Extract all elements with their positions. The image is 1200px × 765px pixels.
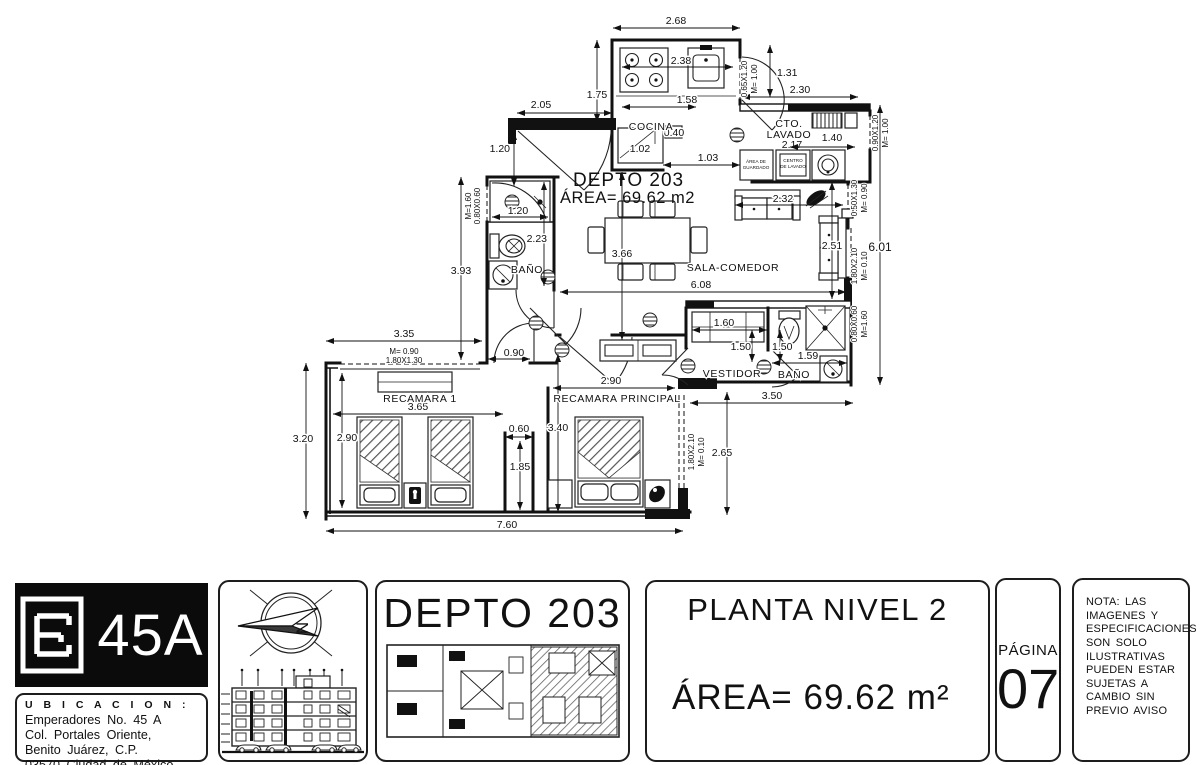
laundry-label-1: CENTRO: [783, 158, 803, 163]
dim-terrace-d: 2.65: [712, 447, 733, 459]
room-rec1: RECAMARA 1: [383, 393, 457, 405]
level-title: PLANTA NIVEL 2: [647, 592, 988, 628]
dim-r1-door: 0.90: [504, 347, 525, 359]
win-lavado-size: 0.90X1.20: [871, 114, 880, 151]
dim-sofa-a: 2.32: [773, 193, 794, 205]
win-balcon-size: 1.80X2.10: [850, 247, 859, 284]
room-vestidor: VESTIDOR: [703, 368, 761, 380]
unit-panel: DEPTO 203: [375, 580, 630, 762]
note-line: ILUSTRATIVAS: [1086, 651, 1188, 665]
dim-terrace-w: 3.50: [762, 390, 783, 402]
dim-left-v: 3.93: [451, 265, 472, 277]
storage-label-2: GUARDADO: [743, 165, 770, 170]
ubicacion-line: Benito Juárez, C.P.: [25, 743, 198, 758]
ubicacion-line: Emperadores No. 45 A: [25, 713, 198, 728]
logo-text: 45A: [93, 602, 208, 669]
win-sala-size: 0.50X1.30: [850, 179, 859, 216]
laundry-label-2: DE LAVADO: [780, 164, 806, 169]
note-line: SUJETAS A: [1086, 678, 1188, 692]
note-line: IMAGENES Y: [1086, 610, 1188, 624]
win-bano2-size: 0.80X0.60: [850, 305, 859, 342]
building-elevation-icon: [221, 669, 364, 753]
dim-r1-h: 2.90: [337, 432, 358, 444]
win-bano2-m: M=1.60: [860, 310, 869, 337]
compass-n-label: N: [293, 622, 312, 634]
win-bano1-m: M=1.60: [464, 192, 473, 219]
dim-living-w: 6.08: [691, 279, 712, 291]
dim-niche-w: 0.60: [509, 423, 530, 435]
win-cocina-m: M= 1.00: [750, 64, 759, 94]
plant-icon: [804, 187, 828, 209]
note-line: ESPECIFICACIONES: [1086, 623, 1188, 637]
shower2-icon: [806, 306, 845, 350]
storage-label-1: ÁREA DE: [746, 158, 766, 164]
stove-icon: [620, 48, 668, 92]
note-line: CAMBIO SIN: [1086, 691, 1188, 705]
room-cto-2: LAVADO: [767, 129, 812, 141]
dim-lavado-top: 2.30: [790, 84, 811, 96]
level-area: ÁREA= 69.62 m²: [672, 678, 988, 718]
dim-sofa-b: 2.51: [822, 240, 843, 252]
room-bano2: BAÑO: [778, 368, 810, 381]
nightstand-icon: [548, 480, 572, 508]
dim-vest-closet: 1.60: [714, 317, 735, 329]
dim-pass: 1.03: [698, 152, 719, 164]
bed2-icon: [428, 417, 473, 508]
dim-lavado-gap: 1.31: [777, 67, 798, 79]
plan-area: ÁREA= 69.62 m2: [560, 188, 695, 207]
dim-dining-v: 3.66: [612, 248, 633, 260]
room-cocina: COCINA: [629, 121, 673, 133]
note-panel: NOTA: LAS IMAGENES Y ESPECIFICACIONES SO…: [1072, 578, 1190, 762]
dim-right-v: 6.01: [868, 240, 892, 254]
note-line: NOTA: LAS: [1086, 596, 1188, 610]
laundry-center-box: CENTRO DE LAVADO: [776, 150, 810, 180]
logo-e-icon: [15, 592, 93, 678]
note-line: PUEDEN ESTAR: [1086, 664, 1188, 678]
dim-bath1-l: 2.23: [527, 233, 548, 245]
page-number: 07: [997, 661, 1059, 717]
ubicacion-line: Col. Portales Oriente,: [25, 728, 198, 743]
washer-icon: [812, 150, 845, 180]
key-plan-icon: [383, 637, 623, 745]
note-line: PREVIO AVISO: [1086, 705, 1188, 719]
dim-kitchen-w: 1.58: [677, 94, 698, 106]
win-recp-size: 1.80X2.10: [687, 433, 696, 470]
laundry-closet-icon: [812, 113, 842, 128]
toilet2-icon: [779, 311, 800, 344]
dim-rp-h: 3.40: [548, 422, 569, 434]
drawing-sheet: ÁREA DE GUARDADO CENTRO DE LAVADO: [0, 0, 1200, 765]
compass-panel: N: [218, 580, 368, 762]
plan-title: DEPTO 203: [573, 170, 684, 191]
bed1-icon: [357, 417, 402, 508]
master-bed-icon: [575, 417, 643, 507]
nightstand-lamp-icon: [404, 483, 426, 508]
dim-top: 2.68: [666, 15, 687, 27]
note-line: SON SOLO: [1086, 637, 1188, 651]
dim-shower1: 1.20: [508, 205, 529, 217]
dim-entry: 2.05: [531, 99, 552, 111]
win-closet-size: 1.80X1.30: [386, 356, 423, 365]
storage-box: ÁREA DE GUARDADO: [740, 150, 773, 180]
level-panel: PLANTA NIVEL 2 ÁREA= 69.62 m²: [645, 580, 990, 762]
floor-plan: ÁREA DE GUARDADO CENTRO DE LAVADO: [0, 0, 1200, 570]
ubicacion-box: U B I C A C I O N : Emperadores No. 45 A…: [15, 693, 208, 762]
dim-entry-h: 1.20: [490, 143, 511, 155]
dim-niche-h: 1.85: [510, 461, 531, 473]
compass-and-elevation: N: [220, 582, 366, 760]
kitchen-sink-icon: [688, 45, 724, 88]
dim-bath2-w: 1.59: [798, 350, 819, 362]
win-balcon-m: M= 0.10: [860, 251, 869, 281]
nightstand-lamp2-icon: [645, 480, 670, 508]
dim-bottom: 7.60: [497, 519, 518, 531]
win-lavado-m: M= 1.00: [881, 118, 890, 148]
win-closet-m: M= 0.90: [389, 347, 419, 356]
dim-closet-lav: 1.40: [822, 132, 843, 144]
dim-k-left: 1.75: [587, 89, 608, 101]
closet-shelf: [378, 372, 452, 392]
ubicacion-heading: U B I C A C I O N :: [25, 699, 198, 711]
toilet1-icon: [490, 234, 525, 258]
room-recp: RECAMARA PRINCIPAL: [553, 393, 680, 405]
dim-vest-d: 1.50: [731, 341, 752, 353]
room-bano1: BAÑO: [511, 263, 543, 276]
dim-rp-w: 2.90: [601, 375, 622, 387]
master-closet: [600, 340, 676, 361]
unit-title: DEPTO 203: [377, 590, 628, 637]
dim-bath2-d: 1.50: [772, 341, 793, 353]
page-panel: PÁGINA 07: [995, 578, 1061, 762]
win-recp-m: M= 0.10: [697, 437, 706, 467]
dim-r1-top: 3.35: [394, 328, 415, 340]
dim-left-outer: 3.20: [293, 433, 314, 445]
ubicacion-line: 03570 Ciudad de México: [25, 758, 198, 765]
logo: 45A: [15, 583, 208, 687]
north-compass-icon: N: [238, 590, 332, 656]
win-bano1-size: 0.80X0.60: [473, 187, 482, 224]
win-sala-m: M= 0.90: [860, 183, 869, 213]
sink2-icon: [820, 356, 847, 382]
win-cocina-size: 0.65X1.20: [740, 60, 749, 97]
room-sala: SALA-COMEDOR: [687, 262, 779, 274]
dim-fridge: 1.02: [630, 143, 651, 155]
dim-stove: 2.38: [671, 55, 692, 67]
